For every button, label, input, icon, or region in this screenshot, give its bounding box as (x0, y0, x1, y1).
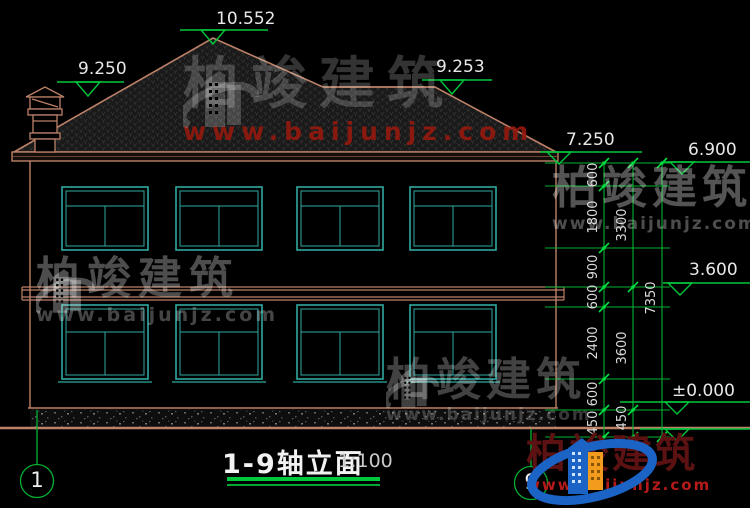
elevation-label-ridge: 10.552 (216, 9, 275, 29)
plinth (28, 408, 558, 428)
title-underline (227, 484, 380, 486)
window (176, 187, 262, 250)
window (62, 187, 148, 250)
axis-number-left: 1 (20, 468, 54, 492)
elevation-label-second-floor: 3.600 (689, 260, 738, 280)
dim-7350: 7350 (643, 271, 661, 325)
title-underline (227, 477, 380, 481)
elevation-drawing-canvas: 柏竣建筑 www.baijunjz.com 柏竣建筑 www.baijunjz.… (0, 0, 750, 508)
elevation-label-right-hip: 9.253 (436, 57, 485, 77)
dim-1800: 1800 (585, 190, 603, 244)
windows (58, 187, 500, 382)
elevation-label-eave-top: 7.250 (566, 130, 615, 150)
company-logo: 柏竣建筑 www.baijunjz.com (520, 434, 711, 494)
window (293, 305, 387, 382)
window (172, 305, 266, 382)
window (58, 305, 152, 382)
logo-building-icon (520, 434, 665, 506)
dim-3300: 3300 (614, 198, 632, 252)
window (410, 187, 496, 250)
dim-2400: 2400 (585, 316, 603, 370)
elevation-label-eave: 6.900 (688, 140, 737, 160)
walls (30, 161, 556, 408)
dim-3600: 3600 (614, 321, 632, 375)
drawing-scale: 1:100 (338, 450, 393, 472)
floor-band (22, 287, 564, 300)
elevation-label-ground-floor: ±0.000 (672, 381, 735, 401)
window (406, 305, 500, 382)
elevation-label-left-hip: 9.250 (78, 59, 127, 79)
window (297, 187, 383, 250)
